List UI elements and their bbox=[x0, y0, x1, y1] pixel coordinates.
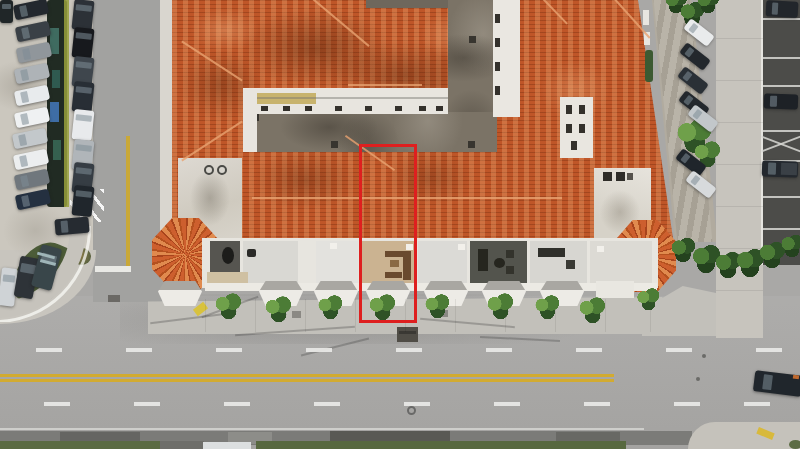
parked-car bbox=[71, 27, 94, 59]
sidewalk-joint bbox=[455, 299, 456, 332]
parked-car bbox=[764, 93, 799, 109]
palm-tree bbox=[695, 0, 721, 13]
lane-dash bbox=[306, 348, 332, 352]
sidewalk-joint bbox=[716, 164, 763, 165]
unit-terrace bbox=[243, 241, 298, 285]
car-windshield bbox=[76, 5, 92, 13]
car-windshield bbox=[76, 115, 92, 123]
back-wall-window bbox=[261, 106, 268, 111]
rooftop-ac-unit bbox=[627, 173, 633, 180]
parked-car bbox=[71, 185, 94, 217]
moving-car-taillight bbox=[793, 375, 799, 380]
car-windshield bbox=[76, 33, 92, 41]
parking-stall-line bbox=[763, 130, 800, 132]
terrace-hot-tub bbox=[222, 247, 234, 264]
lane-dash bbox=[674, 402, 700, 406]
grass-verge bbox=[0, 441, 160, 449]
hedge-grass-edge bbox=[64, 0, 69, 207]
roof-ridge bbox=[348, 84, 422, 86]
gutter-dark bbox=[160, 441, 204, 449]
roof-vent bbox=[204, 165, 214, 175]
terrace-ac-unit bbox=[458, 244, 465, 250]
roof-weathered-patch bbox=[250, 150, 360, 210]
parked-car bbox=[71, 81, 94, 113]
car-windshield bbox=[682, 71, 693, 82]
corner-entry-structure bbox=[596, 281, 634, 298]
highlight-rectangle bbox=[359, 144, 417, 323]
parked-car bbox=[766, 0, 799, 18]
building-left-return-wall bbox=[243, 88, 257, 152]
car-windshield bbox=[18, 134, 27, 147]
corner-concrete bbox=[688, 422, 800, 449]
car-windshield bbox=[20, 91, 29, 104]
sidewalk-joint bbox=[205, 299, 206, 332]
east-wall-window bbox=[495, 14, 500, 23]
patio-chair bbox=[506, 266, 514, 274]
side-street-centerline bbox=[126, 136, 130, 267]
back-wall-window bbox=[335, 106, 342, 111]
lane-dash bbox=[314, 402, 340, 406]
back-wall-window bbox=[365, 106, 372, 111]
parked-car bbox=[71, 109, 94, 141]
terrace-grill bbox=[247, 249, 256, 257]
lane-dash bbox=[486, 348, 512, 352]
pickup-bed bbox=[781, 163, 797, 176]
palm-tree bbox=[213, 293, 243, 320]
car-windshield bbox=[20, 175, 29, 188]
back-wall-window bbox=[283, 106, 290, 111]
roof-light-patch bbox=[190, 8, 260, 52]
car-windshield bbox=[76, 87, 92, 95]
flat-roof-stain bbox=[190, 170, 230, 226]
patio-couch bbox=[478, 249, 488, 271]
car-windshield bbox=[76, 62, 92, 70]
bottom-curb-line bbox=[0, 428, 644, 430]
car-windshield bbox=[76, 191, 92, 199]
patio-chair bbox=[506, 250, 514, 258]
palm-tree bbox=[779, 234, 800, 257]
hedge-patch-blue bbox=[50, 102, 59, 122]
courtyard-vent bbox=[468, 141, 475, 148]
sidewalk-joint bbox=[716, 122, 763, 123]
parking-stall-line bbox=[763, 196, 800, 198]
courtyard-vent bbox=[469, 36, 476, 43]
courtyard-vent bbox=[331, 141, 338, 148]
sidewalk-joint bbox=[255, 299, 256, 332]
lane-dash bbox=[404, 402, 430, 406]
utility-dot bbox=[696, 377, 700, 381]
back-wall-window bbox=[436, 106, 443, 111]
grass-verge bbox=[256, 441, 626, 449]
sidewalk-joint bbox=[716, 290, 763, 291]
pavement-paint-ring bbox=[407, 406, 416, 415]
back-wall-window bbox=[305, 106, 312, 111]
palm-tree bbox=[485, 293, 515, 320]
car-windshield bbox=[770, 95, 777, 107]
patio-table bbox=[494, 258, 505, 268]
hedge-patch bbox=[52, 70, 60, 88]
utility-dot bbox=[702, 354, 706, 358]
unit-terrace bbox=[316, 241, 358, 285]
parking-stall-line bbox=[763, 85, 800, 87]
storm-drain bbox=[108, 295, 120, 302]
patio-chair bbox=[566, 260, 575, 269]
car-windshield bbox=[21, 195, 30, 208]
rooftop-ac-unit bbox=[603, 172, 612, 181]
mid-wall-window bbox=[566, 124, 572, 133]
parked-car bbox=[0, 0, 13, 23]
lane-dash bbox=[666, 348, 692, 352]
center-line-yellow bbox=[0, 374, 614, 377]
car-windshield bbox=[771, 2, 778, 14]
sidewalk-joint bbox=[716, 206, 763, 207]
car-windshield bbox=[61, 220, 69, 233]
hedge-patch bbox=[50, 28, 59, 54]
grass-tuft bbox=[789, 440, 800, 449]
mid-wall-window bbox=[579, 105, 585, 114]
terrace-ac-unit bbox=[597, 246, 604, 252]
palm-tree bbox=[423, 294, 451, 319]
parked-car bbox=[71, 0, 94, 31]
car-windshield bbox=[76, 145, 92, 153]
palm-tree bbox=[316, 295, 344, 320]
aerial-photo-scene bbox=[0, 0, 800, 449]
right-dark-lot bbox=[763, 0, 800, 265]
sidewalk-joint bbox=[716, 80, 763, 81]
car-windshield bbox=[768, 163, 776, 175]
east-wall-window bbox=[495, 38, 500, 47]
palm-tree bbox=[635, 288, 661, 311]
sidewalk-joint bbox=[355, 299, 356, 332]
lane-dash bbox=[744, 402, 770, 406]
patio-couch bbox=[538, 248, 565, 257]
hedge-patch bbox=[53, 140, 61, 160]
mid-wall-window bbox=[579, 124, 585, 133]
rooftop-ac-unit bbox=[616, 172, 625, 181]
car-windshield bbox=[20, 69, 29, 82]
car-windshield bbox=[2, 4, 12, 9]
hedge-strip bbox=[645, 50, 653, 82]
car-windshield bbox=[690, 175, 701, 186]
lane-dash bbox=[126, 348, 152, 352]
sidewalk-utility-mark bbox=[292, 311, 301, 318]
lane-dash bbox=[134, 402, 160, 406]
terrace-ac-unit bbox=[330, 243, 337, 249]
lane-dash bbox=[36, 348, 62, 352]
car-windshield bbox=[76, 168, 92, 176]
lane-dash bbox=[584, 402, 610, 406]
curb-post bbox=[643, 10, 649, 25]
car-windshield bbox=[21, 27, 30, 40]
center-line-yellow bbox=[0, 379, 614, 382]
lane-dash bbox=[576, 348, 602, 352]
back-wall-window bbox=[419, 106, 426, 111]
bay-window bbox=[158, 281, 202, 306]
parked-van-roof bbox=[203, 442, 251, 449]
lane-dash bbox=[224, 402, 250, 406]
lane-dash bbox=[494, 402, 520, 406]
mid-wall-window bbox=[571, 141, 577, 150]
storm-drain bbox=[397, 327, 418, 342]
building-west-wall bbox=[160, 0, 173, 234]
car-windshield bbox=[692, 109, 703, 120]
parking-stall-line bbox=[763, 228, 800, 230]
car-windshield bbox=[680, 153, 691, 164]
palm-tree bbox=[263, 296, 293, 323]
east-wall-window bbox=[495, 62, 500, 71]
palm-tree bbox=[533, 295, 561, 320]
parking-stall-line bbox=[763, 57, 800, 59]
lane-dash bbox=[44, 402, 70, 406]
car-windshield bbox=[762, 374, 773, 391]
mid-wall-window bbox=[566, 105, 572, 114]
car-windshield bbox=[2, 274, 15, 283]
lane-dash bbox=[216, 348, 242, 352]
back-wall-ledge bbox=[243, 97, 448, 99]
car-windshield bbox=[19, 5, 28, 18]
car-windshield bbox=[22, 48, 31, 61]
right-sidewalk bbox=[716, 0, 763, 338]
car-windshield bbox=[19, 155, 28, 168]
parked-car bbox=[54, 217, 89, 236]
car-windshield bbox=[684, 47, 695, 58]
storm-drain-slot bbox=[399, 331, 416, 334]
lane-dash bbox=[396, 348, 422, 352]
sidewalk-joint bbox=[716, 38, 763, 39]
palm-tree bbox=[577, 297, 607, 324]
parking-stall-line bbox=[763, 18, 800, 20]
car-windshield bbox=[688, 23, 699, 34]
east-wall-window bbox=[495, 86, 500, 95]
roof-vent bbox=[217, 165, 227, 175]
car-windshield bbox=[20, 113, 29, 126]
sidewalk-joint bbox=[305, 299, 306, 332]
lane-dash bbox=[756, 348, 782, 352]
car-windshield bbox=[683, 95, 694, 106]
back-wall-window bbox=[395, 106, 402, 111]
